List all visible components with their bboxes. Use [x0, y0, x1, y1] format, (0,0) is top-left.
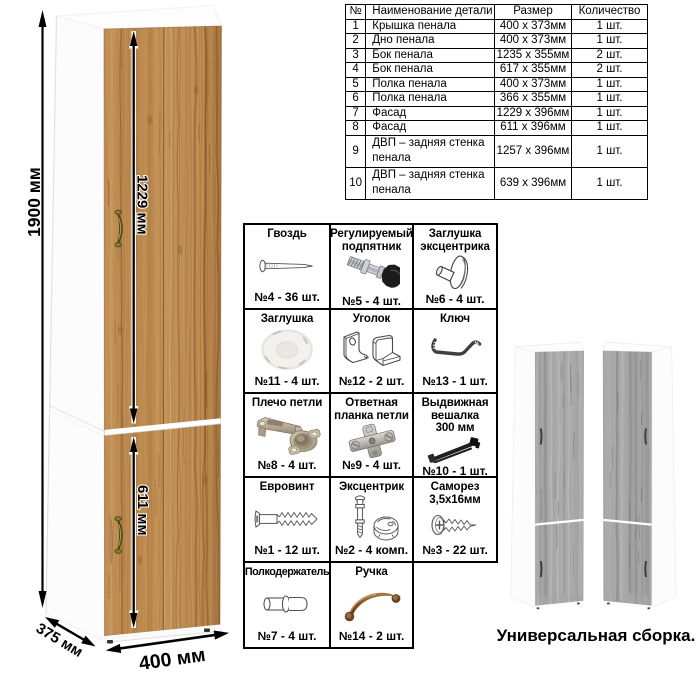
svg-text:1229 мм: 1229 мм: [134, 175, 151, 235]
svg-text:1900 мм: 1900 мм: [24, 167, 44, 237]
svg-text:611 мм: 611 мм: [134, 485, 151, 536]
svg-text:400 мм: 400 мм: [138, 644, 207, 675]
